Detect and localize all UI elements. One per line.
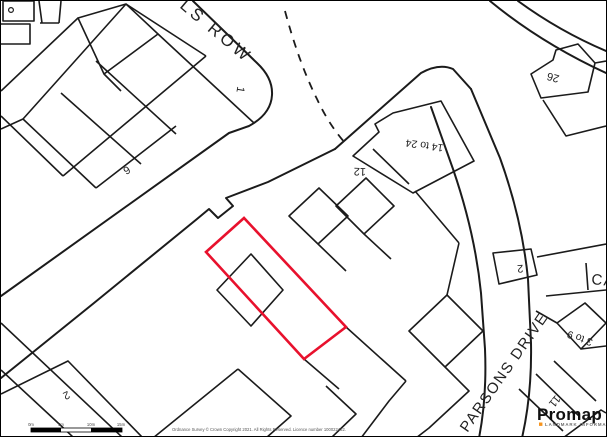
scale-tick-1: 5m <box>58 422 64 427</box>
scale-tick-0: 0m <box>28 422 34 427</box>
map-canvas[interactable]: LS ROW PARSONS DRIVE CA 1 6 12 14 to 24 … <box>1 1 606 436</box>
red-plot-boundary[interactable] <box>206 218 346 359</box>
promap-logo-accent-square <box>539 423 542 426</box>
copyright-notice: Ordnance Survey © Crown Copyright 2021. … <box>172 427 346 432</box>
promap-logo: Promap LANDMARK INFORMATION <box>537 405 606 427</box>
scale-tick-2: 10m <box>87 422 96 427</box>
street-label-partial-east: CA <box>591 271 606 290</box>
plot-number-14-24: 14 to 24 <box>405 136 444 153</box>
plot-number-2-east: 2 <box>517 262 524 274</box>
selected-plot[interactable] <box>206 218 346 359</box>
street-label-wells-row: LS ROW <box>176 1 256 67</box>
unadopted-road-dashes <box>285 11 346 144</box>
promap-logo-tagline: LANDMARK INFORMATION <box>545 422 606 427</box>
plot-number-12: 12 <box>354 165 367 177</box>
plot-number-2-southwest: 2 <box>61 388 72 401</box>
map-viewport[interactable]: LS ROW PARSONS DRIVE CA 1 6 12 14 to 24 … <box>0 0 607 437</box>
plot-number-3-9: 3 to 9 <box>565 328 594 348</box>
plot-number-6: 6 <box>121 163 132 176</box>
plot-number-1: 1 <box>234 85 247 93</box>
scale-tick-3: 15m <box>117 422 126 427</box>
plot-number-26: 26 <box>546 70 561 85</box>
